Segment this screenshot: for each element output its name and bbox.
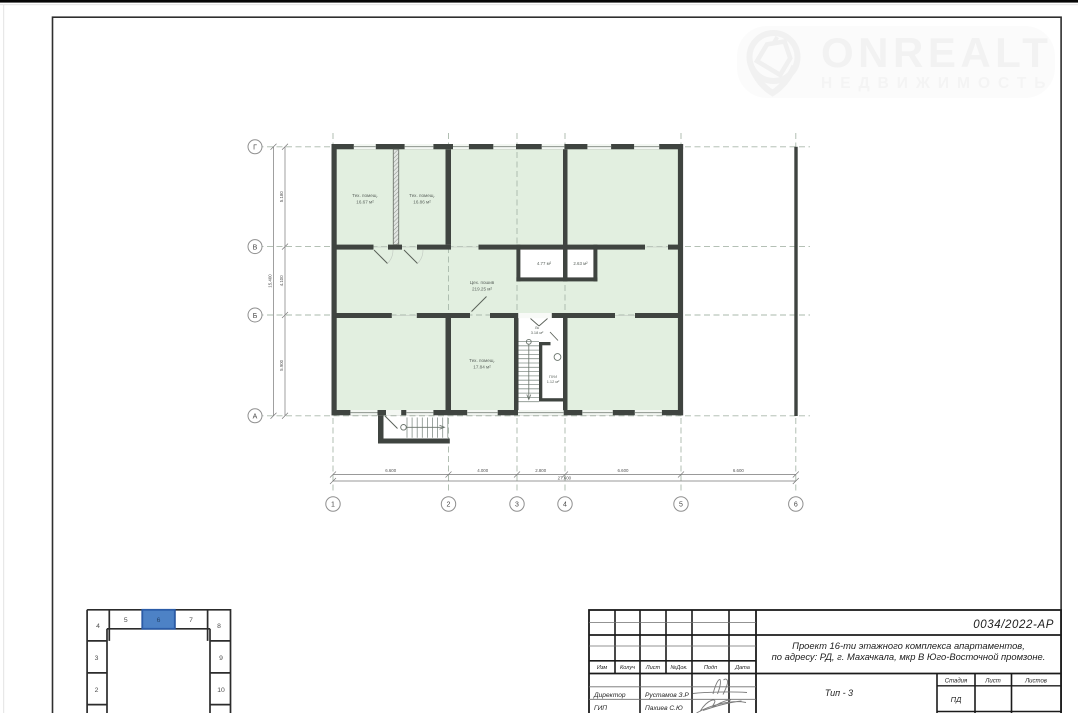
svg-text:7: 7 bbox=[189, 617, 193, 624]
svg-text:5: 5 bbox=[124, 617, 128, 624]
svg-text:Колуч: Колуч bbox=[620, 665, 635, 671]
svg-text:Тех. помещ.: Тех. помещ. bbox=[469, 358, 495, 363]
svg-text:Директор: Директор bbox=[593, 692, 626, 699]
svg-text:ГИП: ГИП bbox=[594, 705, 607, 712]
svg-text:Подп: Подп bbox=[704, 665, 717, 671]
svg-text:6.600: 6.600 bbox=[385, 468, 397, 473]
svg-text:Тип - 3: Тип - 3 bbox=[825, 688, 853, 698]
svg-text:6.600: 6.600 bbox=[733, 468, 745, 473]
svg-text:8: 8 bbox=[217, 623, 221, 630]
svg-text:№Док.: №Док. bbox=[670, 665, 687, 671]
svg-text:НЕДВИЖИМОСТЬ: НЕДВИЖИМОСТЬ bbox=[821, 75, 1053, 92]
svg-text:4.100: 4.100 bbox=[279, 275, 284, 287]
svg-text:Лист: Лист bbox=[984, 679, 1000, 685]
svg-text:3.18 м²: 3.18 м² bbox=[531, 330, 544, 335]
svg-text:17.84 м²: 17.84 м² bbox=[473, 365, 491, 370]
svg-text:4.000: 4.000 bbox=[477, 468, 489, 473]
svg-text:Проект 16-ти этажного комплекс: Проект 16-ти этажного комплекса апартаме… bbox=[792, 640, 1025, 651]
svg-text:5.900: 5.900 bbox=[279, 359, 284, 371]
svg-text:ПД: ПД bbox=[951, 695, 962, 704]
svg-text:4: 4 bbox=[563, 502, 567, 509]
svg-text:Стадия: Стадия bbox=[945, 679, 968, 685]
svg-text:Листов: Листов bbox=[1024, 679, 1047, 685]
svg-text:2.63 м²: 2.63 м² bbox=[573, 261, 588, 266]
svg-text:16.86 м²: 16.86 м² bbox=[413, 200, 431, 205]
svg-text:2: 2 bbox=[447, 502, 451, 509]
svg-text:ONREALT: ONREALT bbox=[821, 29, 1052, 76]
svg-text:15.400: 15.400 bbox=[268, 274, 273, 288]
svg-text:Дата: Дата bbox=[734, 665, 750, 671]
svg-text:6: 6 bbox=[157, 617, 161, 624]
svg-text:4: 4 bbox=[96, 623, 100, 630]
svg-text:27.600: 27.600 bbox=[558, 475, 572, 480]
svg-text:В: В bbox=[253, 244, 258, 251]
svg-text:9: 9 bbox=[219, 655, 223, 662]
svg-text:Пахиев С.Ю: Пахиев С.Ю bbox=[645, 705, 683, 712]
svg-text:по адресу: РД, г. Махачкала, м: по адресу: РД, г. Махачкала, мкр В Юго-В… bbox=[772, 651, 1046, 662]
svg-text:Тех. помещ.: Тех. помещ. bbox=[409, 193, 435, 198]
svg-text:2: 2 bbox=[95, 687, 99, 694]
svg-text:6.600: 6.600 bbox=[618, 468, 630, 473]
svg-text:Цех. пошив: Цех. пошив bbox=[470, 280, 495, 285]
svg-text:Б: Б bbox=[253, 313, 258, 320]
svg-text:Г: Г bbox=[253, 145, 257, 152]
svg-text:3: 3 bbox=[95, 655, 99, 662]
svg-text:5: 5 bbox=[679, 502, 683, 509]
svg-text:219.25 м²: 219.25 м² bbox=[472, 287, 492, 292]
svg-text:А: А bbox=[253, 414, 258, 421]
svg-text:Тех. помещ.: Тех. помещ. bbox=[352, 193, 378, 198]
svg-text:Изм: Изм bbox=[597, 665, 608, 671]
svg-text:0034/2022-АР: 0034/2022-АР bbox=[973, 619, 1054, 631]
svg-text:16.67 м²: 16.67 м² bbox=[356, 200, 374, 205]
svg-text:1: 1 bbox=[331, 502, 335, 509]
svg-text:5.180: 5.180 bbox=[279, 191, 284, 203]
svg-text:1.12 м²: 1.12 м² bbox=[547, 379, 560, 384]
svg-text:4.77 м²: 4.77 м² bbox=[537, 261, 552, 266]
svg-text:Рустамов З.Р: Рустамов З.Р bbox=[645, 692, 689, 699]
svg-text:Лист: Лист bbox=[645, 665, 661, 671]
svg-text:2.800: 2.800 bbox=[535, 468, 547, 473]
svg-text:6: 6 bbox=[794, 502, 798, 509]
svg-text:10: 10 bbox=[217, 687, 225, 694]
svg-text:3: 3 bbox=[515, 502, 519, 509]
